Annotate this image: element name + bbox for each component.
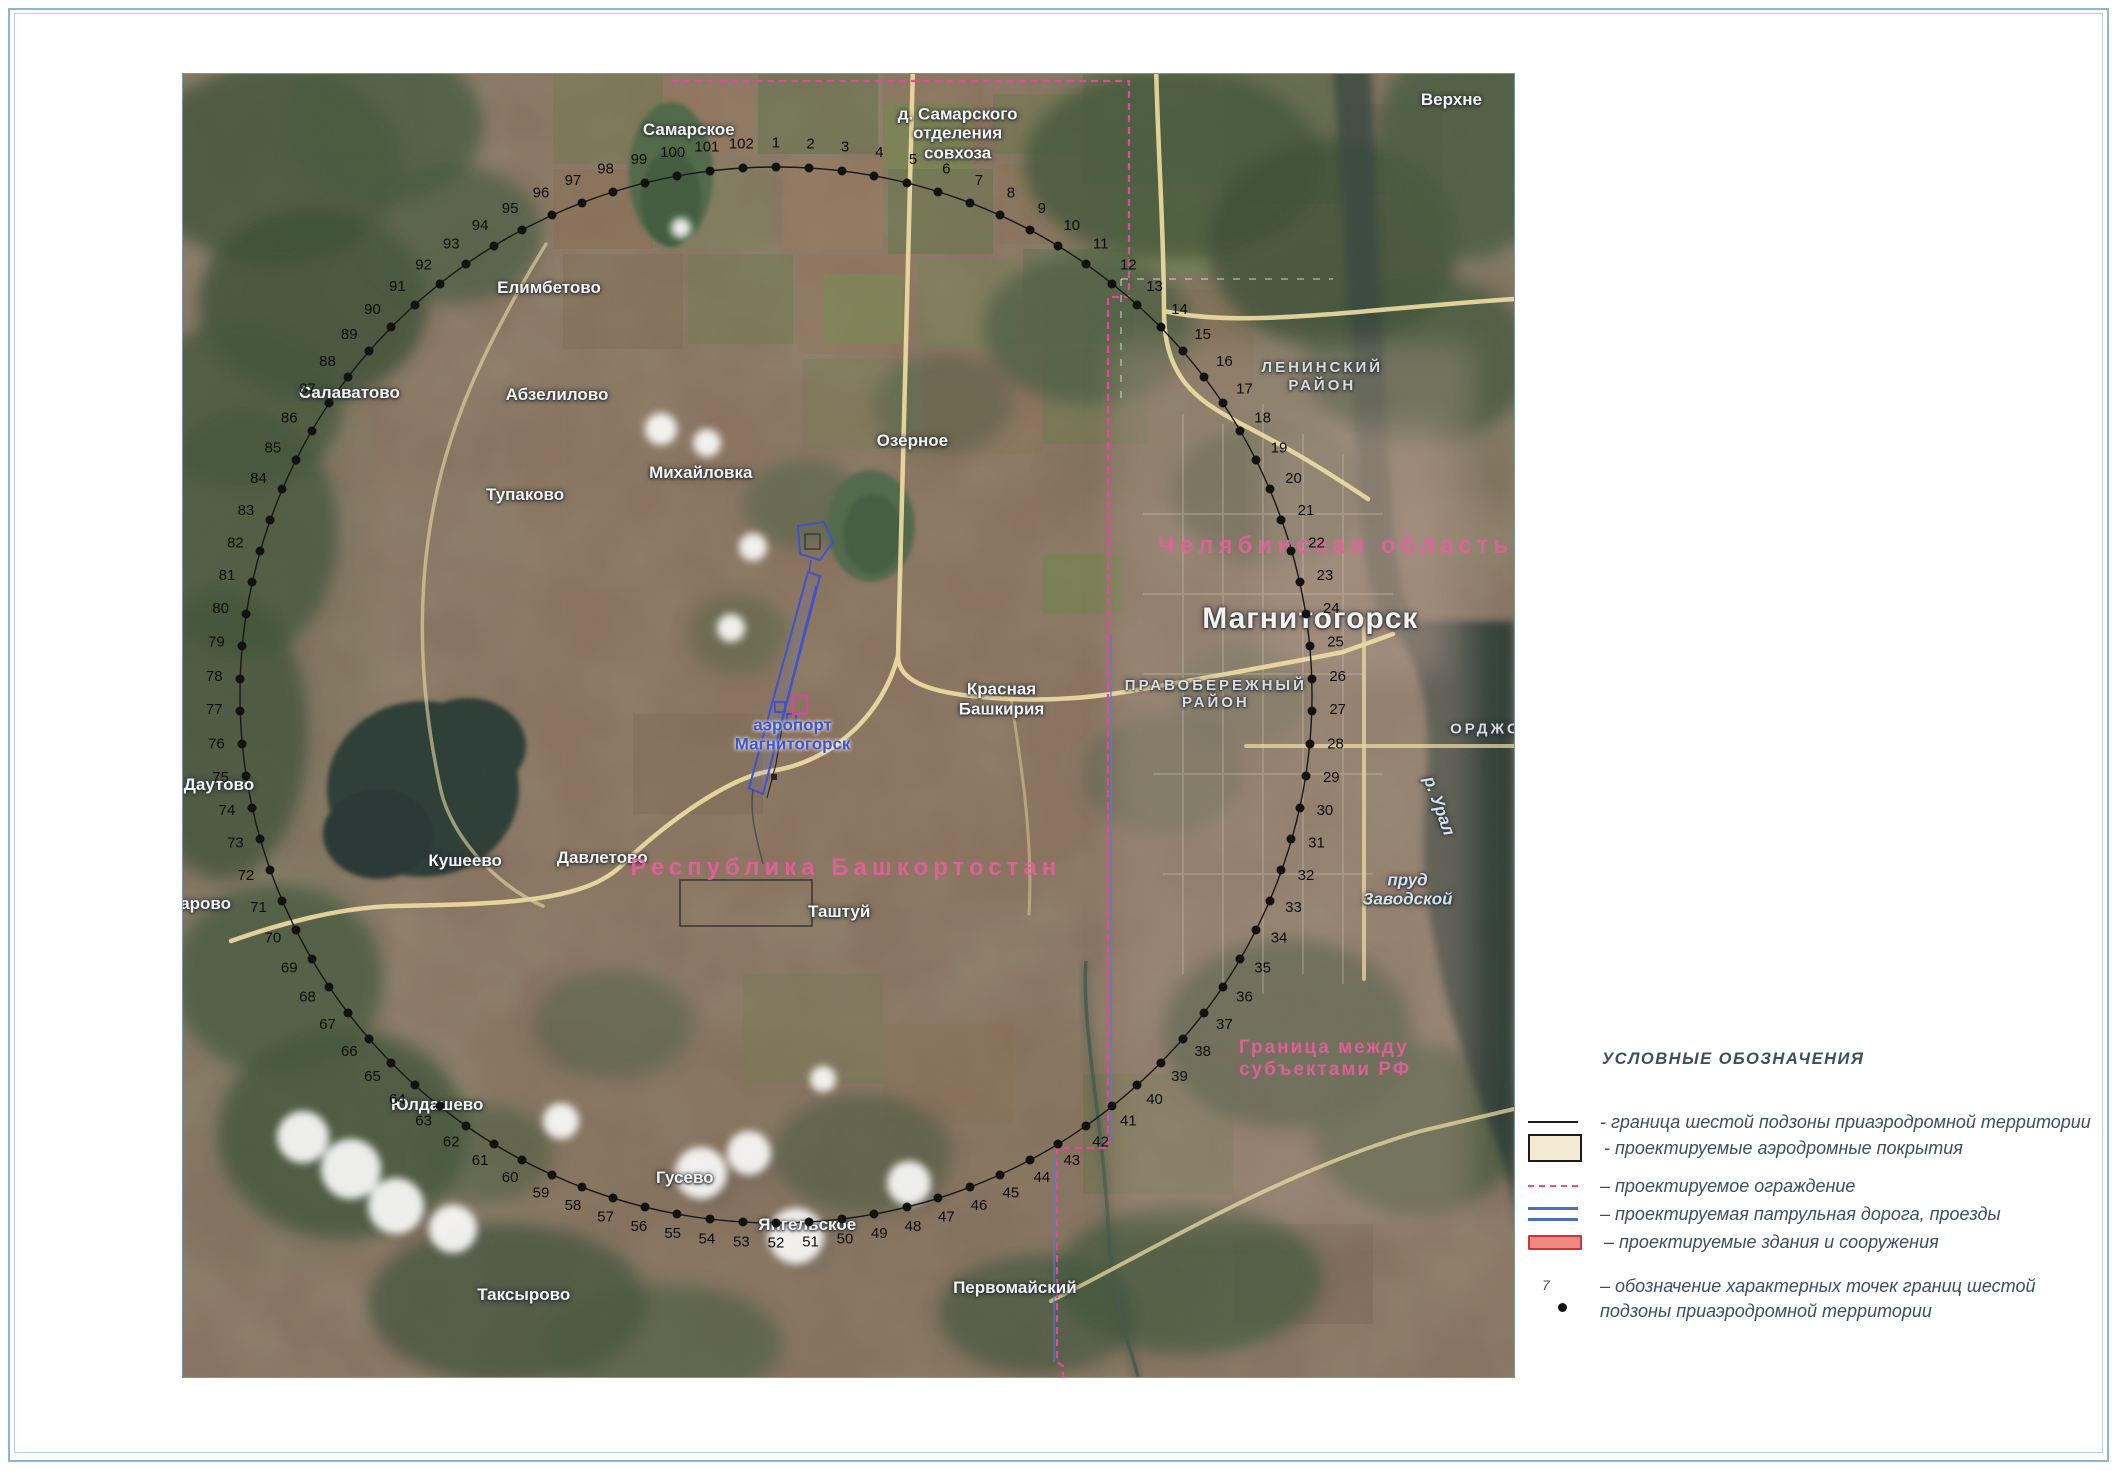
boundary-point-dot [278, 896, 287, 905]
legend-item-label: – проектируемые здания и сооружения [1604, 1230, 1939, 1255]
boundary-point-label: 13 [1146, 278, 1163, 295]
boundary-point-dot [1301, 771, 1310, 780]
boundary-point-label: 100 [660, 144, 685, 161]
legend-item-3: – проектируемое ограждение [1528, 1171, 1855, 1201]
boundary-point-label: 49 [871, 1225, 888, 1242]
boundary-point-label: 81 [219, 567, 236, 584]
boundary-point-dot [248, 578, 257, 587]
boundary-point-label: 60 [502, 1169, 519, 1186]
boundary-point-dot [641, 1203, 650, 1212]
boundary-point-label: 65 [364, 1067, 381, 1084]
boundary-point-dot [1218, 399, 1227, 408]
boundary-point-dot [1025, 225, 1034, 234]
boundary-point-label: 39 [1171, 1067, 1188, 1084]
boundary-point-label: 53 [733, 1233, 750, 1250]
boundary-point-label: 22 [1308, 534, 1325, 551]
boundary-point-dot [236, 707, 245, 716]
boundary-point-dot [292, 926, 301, 935]
boundary-point-dot [1178, 347, 1187, 356]
boundary-point-dot [1199, 372, 1208, 381]
boundary-point-label: 16 [1216, 353, 1233, 370]
boundary-point-label: 73 [227, 835, 244, 852]
boundary-point-label: 88 [319, 353, 336, 370]
legend-symbol-paved-area-icon [1528, 1134, 1582, 1162]
boundary-point-label: 15 [1194, 327, 1211, 344]
map-place-label: Абзелилово [506, 385, 609, 405]
boundary-point-label: 29 [1323, 769, 1340, 786]
boundary-point-label: 45 [1003, 1184, 1020, 1201]
boundary-point-label: 67 [319, 1016, 336, 1033]
boundary-point-dot [435, 279, 444, 288]
boundary-point-dot [995, 211, 1004, 220]
boundary-point-dot [248, 803, 257, 812]
boundary-point-label: 25 [1327, 634, 1344, 651]
boundary-point-dot [706, 1214, 715, 1223]
boundary-point-dot [1301, 610, 1310, 619]
boundary-point-label: 37 [1216, 1016, 1233, 1033]
boundary-point-dot [1107, 1102, 1116, 1111]
boundary-point-dot [242, 610, 251, 619]
boundary-point-label: 3 [841, 139, 849, 156]
boundary-point-dot [1287, 546, 1296, 555]
boundary-point-label: 14 [1171, 302, 1188, 319]
boundary-point-label: 94 [472, 217, 489, 234]
boundary-point-dot [870, 172, 879, 181]
boundary-point-label: 26 [1329, 668, 1346, 685]
legend-item-label: - проектируемые аэродромные покрытия [1604, 1136, 1963, 1161]
legend-item-5: – проектируемые здания и сооружения [1528, 1227, 1939, 1257]
boundary-point-label: 42 [1092, 1133, 1109, 1150]
boundary-point-dot [435, 1102, 444, 1111]
boundary-point-label: 74 [219, 802, 236, 819]
boundary-point-dot [609, 187, 618, 196]
map-place-label: Таштуй [808, 902, 870, 922]
boundary-point-label: 99 [631, 151, 648, 168]
map-place-label: Таксырово [477, 1285, 570, 1305]
boundary-point-dot [256, 546, 265, 555]
boundary-point-dot [242, 771, 251, 780]
boundary-point-dot [307, 954, 316, 963]
boundary-point-dot [387, 323, 396, 332]
map-place-label: Республика Башкортостан [630, 854, 1061, 882]
map-place-label: Михайловка [649, 463, 752, 483]
boundary-point-dot [934, 187, 943, 196]
boundary-point-label: 12 [1120, 256, 1137, 273]
boundary-point-label: 43 [1063, 1152, 1080, 1169]
legend-item-label: – проектируемое ограждение [1600, 1174, 1855, 1199]
legend-point-dot-icon [1558, 1303, 1567, 1312]
boundary-point-label: 18 [1254, 410, 1271, 427]
map-place-label: Первомайский [953, 1279, 1077, 1299]
boundary-point-dot [673, 172, 682, 181]
boundary-point-dot [1218, 982, 1227, 991]
map-place-label: Красная Башкирия [959, 680, 1045, 719]
map-place-label: Елимбетово [497, 278, 601, 298]
boundary-point-dot [364, 1034, 373, 1043]
boundary-point-label: 59 [533, 1184, 550, 1201]
boundary-point-dot [1307, 707, 1316, 716]
boundary-point-label: 57 [597, 1209, 614, 1226]
boundary-point-label: 44 [1033, 1169, 1050, 1186]
boundary-point-dot [1236, 427, 1245, 436]
map-place-label: пруд Заводской [1363, 870, 1453, 909]
boundary-point-dot [1054, 242, 1063, 251]
boundary-point-label: 6 [942, 160, 950, 177]
boundary-point-label: 77 [206, 701, 223, 718]
boundary-point-label: 98 [597, 160, 614, 177]
boundary-point-dot [518, 1156, 527, 1165]
boundary-point-dot [902, 178, 911, 187]
boundary-point-label: 30 [1317, 802, 1334, 819]
boundary-point-dot [278, 485, 287, 494]
map-place-label: ЛЕНИНСКИЙ РАЙОН [1226, 359, 1418, 394]
boundary-point-dot [804, 1217, 813, 1226]
boundary-point-label: 34 [1271, 930, 1288, 947]
boundary-point-label: 23 [1317, 567, 1334, 584]
boundary-point-dot [641, 178, 650, 187]
boundary-point-label: 91 [389, 278, 406, 295]
boundary-point-dot [1295, 578, 1304, 587]
boundary-point-dot [673, 1209, 682, 1218]
boundary-point-dot [344, 1009, 353, 1018]
legend: УСЛОВНЫЕ ОБОЗНАЧЕНИЯ - граница шестой по… [1528, 1048, 2114, 1388]
boundary-point-label: 69 [281, 959, 298, 976]
boundary-point-label: 10 [1063, 217, 1080, 234]
satellite-map[interactable]: Самарскоед. Самарского отделения совхоза… [182, 73, 1515, 1378]
boundary-point-dot [1081, 260, 1090, 269]
boundary-point-dot [256, 835, 265, 844]
boundary-point-label: 8 [1007, 185, 1015, 202]
boundary-point-dot [266, 866, 275, 875]
boundary-point-dot [1156, 323, 1165, 332]
boundary-point-label: 19 [1271, 439, 1288, 456]
legend-item-6: 7– обозначение характерных точек границ … [1528, 1284, 2035, 1314]
boundary-point-label: 36 [1236, 988, 1253, 1005]
boundary-point-label: 90 [364, 302, 381, 319]
boundary-point-label: 62 [443, 1133, 460, 1150]
boundary-point-label: 82 [227, 534, 244, 551]
boundary-point-dot [1081, 1121, 1090, 1130]
boundary-point-dot [1054, 1139, 1063, 1148]
boundary-point-label: 35 [1254, 959, 1271, 976]
boundary-point-dot [995, 1170, 1004, 1179]
boundary-point-dot [325, 399, 334, 408]
boundary-point-dot [325, 982, 334, 991]
boundary-point-dot [307, 427, 316, 436]
boundary-point-label: 79 [208, 634, 225, 651]
boundary-point-dot [266, 515, 275, 524]
map-place-label: Магнитогорск [1202, 601, 1418, 636]
boundary-point-dot [364, 347, 373, 356]
boundary-point-dot [1107, 279, 1116, 288]
legend-symbol-buildings-icon [1528, 1235, 1582, 1250]
boundary-point-label: 48 [905, 1218, 922, 1235]
map-place-label: Тупаково [486, 485, 564, 505]
boundary-point-label: 58 [565, 1197, 582, 1214]
boundary-point-dot [489, 242, 498, 251]
boundary-point-dot [1305, 739, 1314, 748]
boundary-point-dot [344, 372, 353, 381]
boundary-point-dot [934, 1194, 943, 1203]
boundary-point-dot [837, 1214, 846, 1223]
boundary-point-label: 2 [806, 136, 814, 153]
boundary-point-label: 5 [909, 151, 917, 168]
boundary-point-dot [410, 300, 419, 309]
map-place-label: Озерное [877, 432, 948, 452]
map-place-label: Кушеево [428, 851, 502, 871]
boundary-point-label: 20 [1285, 470, 1302, 487]
boundary-point-label: 54 [699, 1230, 716, 1247]
boundary-point-label: 1 [772, 135, 780, 152]
map-place-label: аэропорт Магнитогорск [735, 715, 851, 754]
boundary-point-label: 85 [265, 439, 282, 456]
boundary-point-dot [706, 167, 715, 176]
legend-symbol-char-point-icon: 7 [1528, 1277, 1578, 1321]
boundary-point-dot [1277, 515, 1286, 524]
boundary-point-label: 9 [1038, 200, 1046, 217]
boundary-point-dot [1277, 866, 1286, 875]
boundary-point-label: 76 [208, 735, 225, 752]
legend-symbol-fence-dashed-icon [1528, 1185, 1578, 1187]
boundary-point-label: 70 [265, 930, 282, 947]
boundary-point-label: 68 [299, 988, 316, 1005]
boundary-point-label: 47 [938, 1209, 955, 1226]
boundary-point-dot [292, 455, 301, 464]
legend-item-label: – проектируемая патрульная дорога, проез… [1600, 1202, 2001, 1227]
legend-item-label: – обозначение характерных точек границ ш… [1600, 1274, 2035, 1324]
boundary-point-dot [547, 211, 556, 220]
boundary-point-dot [738, 164, 747, 173]
legend-item-2: - проектируемые аэродромные покрытия [1528, 1133, 1963, 1163]
boundary-point-label: 55 [664, 1225, 681, 1242]
map-place-label: Верхне [1421, 90, 1482, 110]
boundary-point-dot [902, 1203, 911, 1212]
boundary-point-dot [771, 163, 780, 172]
boundary-point-label: 93 [443, 236, 460, 253]
boundary-point-label: 96 [533, 185, 550, 202]
boundary-point-dot [771, 1218, 780, 1227]
boundary-point-label: 17 [1236, 381, 1253, 398]
boundary-point-dot [1265, 896, 1274, 905]
boundary-point-dot [1287, 835, 1296, 844]
boundary-point-label: 87 [299, 381, 316, 398]
legend-point-number: 7 [1542, 1277, 1550, 1293]
boundary-point-label: 51 [802, 1233, 819, 1250]
boundary-point-label: 4 [875, 144, 883, 161]
boundary-point-label: 38 [1194, 1042, 1211, 1059]
map-place-label: Гусево [656, 1168, 714, 1188]
boundary-point-label: 80 [212, 600, 229, 617]
boundary-point-dot [462, 1121, 471, 1130]
boundary-point-dot [1133, 300, 1142, 309]
map-place-label: ОРДЖОН [1450, 721, 1515, 738]
boundary-point-dot [489, 1139, 498, 1148]
boundary-point-dot [1156, 1058, 1165, 1067]
boundary-point-label: 72 [238, 867, 255, 884]
boundary-point-label: 92 [415, 256, 432, 273]
boundary-point-dot [804, 164, 813, 173]
legend-symbol-patrol-road-icon [1528, 1207, 1578, 1221]
document-sheet: Самарскоед. Самарского отделения совхоза… [0, 0, 2117, 1470]
boundary-point-dot [578, 1183, 587, 1192]
boundary-point-label: 83 [238, 502, 255, 519]
boundary-point-dot [410, 1081, 419, 1090]
map-place-label: Граница между субъектами РФ [1239, 1037, 1411, 1081]
boundary-point-label: 21 [1298, 502, 1315, 519]
boundary-point-label: 32 [1298, 867, 1315, 884]
boundary-point-label: 27 [1329, 701, 1346, 718]
boundary-point-label: 86 [281, 410, 298, 427]
boundary-point-dot [965, 198, 974, 207]
boundary-point-label: 61 [472, 1152, 489, 1169]
boundary-point-label: 31 [1308, 835, 1325, 852]
boundary-point-label: 33 [1285, 899, 1302, 916]
boundary-point-label: 95 [502, 200, 519, 217]
legend-item-4: – проектируемая патрульная дорога, проез… [1528, 1199, 2001, 1229]
boundary-point-dot [1251, 926, 1260, 935]
boundary-point-label: 52 [768, 1234, 785, 1251]
boundary-point-label: 46 [971, 1197, 988, 1214]
legend-item-label: - граница шестой подзоны приаэродромной … [1600, 1110, 2091, 1135]
boundary-point-dot [518, 225, 527, 234]
boundary-point-dot [609, 1194, 618, 1203]
boundary-point-dot [1133, 1081, 1142, 1090]
boundary-point-dot [1307, 674, 1316, 683]
boundary-point-label: 28 [1327, 735, 1344, 752]
boundary-point-dot [837, 167, 846, 176]
boundary-point-dot [238, 642, 247, 651]
boundary-point-label: 11 [1093, 236, 1109, 253]
boundary-point-dot [547, 1170, 556, 1179]
boundary-point-dot [236, 674, 245, 683]
boundary-point-label: 7 [975, 172, 983, 189]
boundary-point-dot [1178, 1034, 1187, 1043]
legend-title: УСЛОВНЫЕ ОБОЗНАЧЕНИЯ [1602, 1050, 1864, 1069]
boundary-point-label: 66 [341, 1042, 358, 1059]
boundary-point-label: 56 [631, 1218, 648, 1235]
boundary-point-label: 40 [1146, 1091, 1163, 1108]
legend-symbol-solid-line-icon [1528, 1121, 1578, 1123]
boundary-point-dot [238, 739, 247, 748]
boundary-point-label: 50 [837, 1230, 854, 1247]
boundary-point-label: 75 [212, 769, 229, 786]
boundary-point-dot [1236, 954, 1245, 963]
map-place-label: ПРАВОБЕРЕЖНЫЙ РАЙОН [1125, 677, 1307, 712]
boundary-point-dot [1295, 803, 1304, 812]
boundary-point-dot [1265, 485, 1274, 494]
boundary-point-label: 41 [1120, 1113, 1137, 1130]
boundary-point-label: 102 [729, 136, 754, 153]
boundary-point-dot [462, 260, 471, 269]
boundary-point-label: 71 [250, 899, 267, 916]
map-place-label: Челябинская область [1158, 532, 1513, 560]
boundary-point-label: 63 [415, 1113, 432, 1130]
map-place-label: Самарское [643, 120, 735, 140]
boundary-point-dot [738, 1217, 747, 1226]
boundary-point-label: 64 [389, 1091, 406, 1108]
boundary-point-dot [965, 1183, 974, 1192]
boundary-point-dot [1251, 455, 1260, 464]
boundary-point-dot [870, 1209, 879, 1218]
boundary-point-dot [1025, 1156, 1034, 1165]
boundary-point-label: 78 [206, 668, 223, 685]
map-place-label: арово [182, 894, 231, 914]
boundary-point-dot [1305, 642, 1314, 651]
boundary-point-dot [1199, 1009, 1208, 1018]
boundary-point-label: 97 [565, 172, 582, 189]
boundary-point-dot [578, 198, 587, 207]
boundary-point-label: 89 [341, 327, 358, 344]
boundary-point-dot [387, 1058, 396, 1067]
boundary-point-label: 24 [1323, 600, 1340, 617]
boundary-point-label: 101 [694, 139, 719, 156]
boundary-point-label: 84 [250, 470, 267, 487]
